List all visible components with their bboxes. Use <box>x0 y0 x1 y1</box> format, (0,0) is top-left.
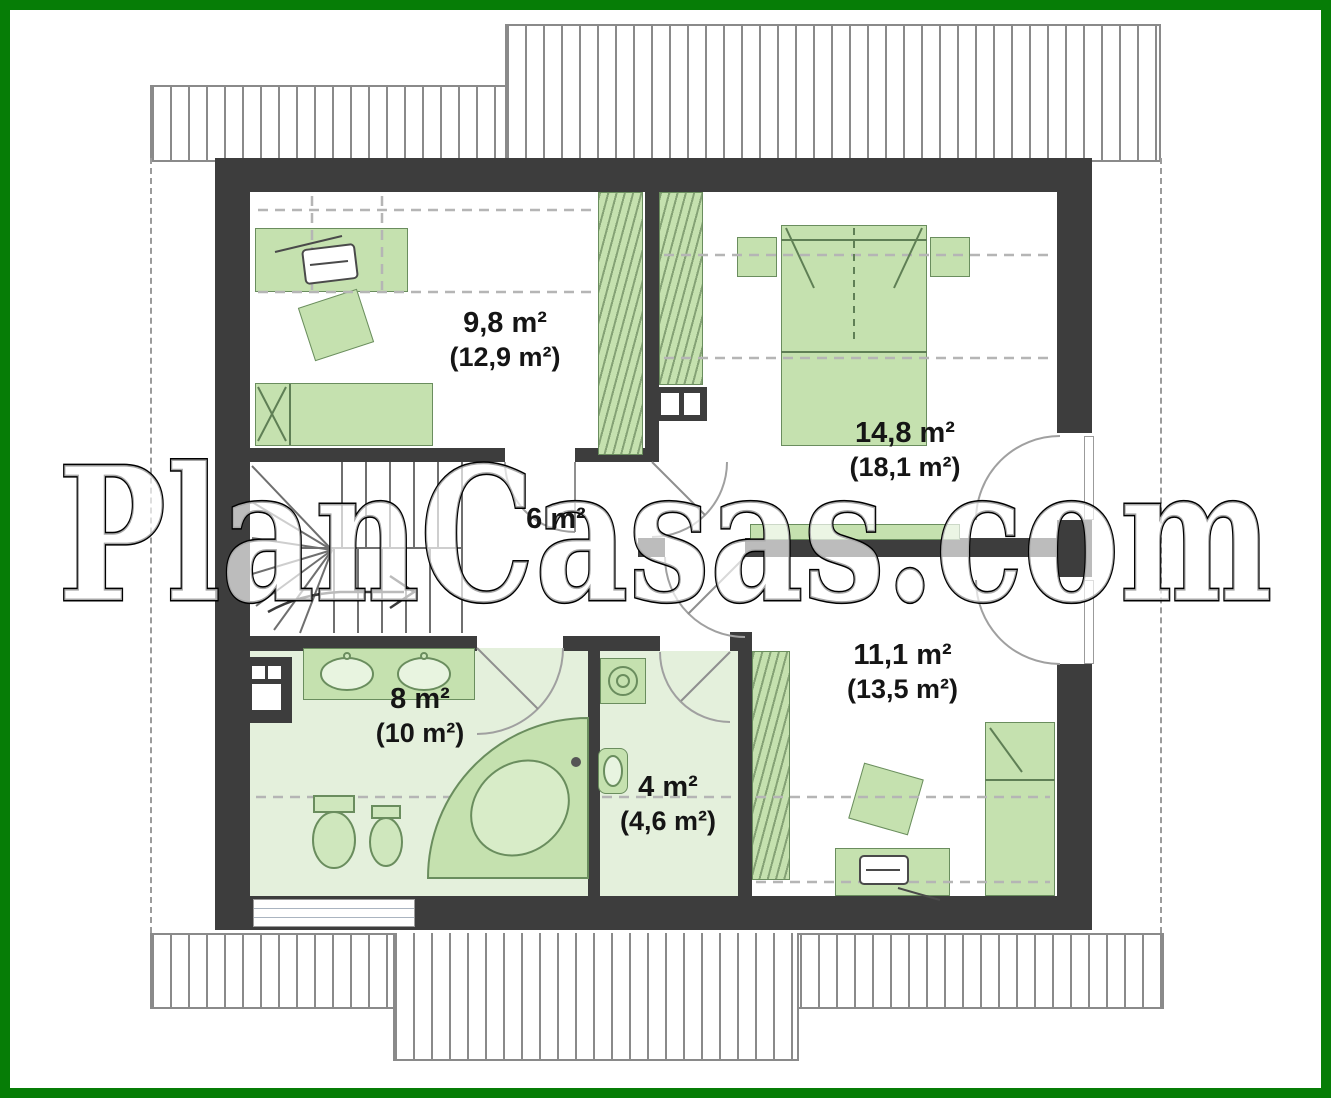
room-area-net: 9,8 m² <box>400 306 610 340</box>
room-label-utility: 4 m² (4,6 m²) <box>580 770 756 838</box>
floor-plan-image: PlanCasas.com 9,8 m² (12,9 m²) 14,8 m² (… <box>0 0 1331 1098</box>
toilet-icon <box>313 812 355 868</box>
watermark-text: PlanCasas.com <box>58 426 1273 644</box>
room-area-gross: (4,6 m²) <box>580 804 756 838</box>
room-label-hall: 6 m² <box>501 502 611 536</box>
room-area-net: 11,1 m² <box>790 638 1015 672</box>
room-area-net: 14,8 m² <box>795 416 1015 450</box>
room-label-bathroom: 8 m² (10 m²) <box>332 682 508 750</box>
bathtub-faucet-icon <box>571 757 581 767</box>
bidet-icon <box>372 806 400 818</box>
toilet-icon <box>314 796 354 812</box>
room-label-9-8: 9,8 m² (12,9 m²) <box>400 306 610 374</box>
room-area-net: 8 m² <box>332 682 508 716</box>
room-area-net: 6 m² <box>501 502 611 536</box>
room-area-gross: (18,1 m²) <box>795 450 1015 484</box>
room-area-net: 4 m² <box>580 770 756 804</box>
room-label-14-8: 14,8 m² (18,1 m²) <box>795 416 1015 484</box>
plan-linework: PlanCasas.com <box>0 0 1331 1098</box>
room-area-gross: (10 m²) <box>332 716 508 750</box>
washing-machine-drum-icon <box>609 667 637 695</box>
room-area-gross: (12,9 m²) <box>400 340 610 374</box>
bidet-icon <box>370 818 402 866</box>
room-area-gross: (13,5 m²) <box>790 672 1015 706</box>
room-label-11-1: 11,1 m² (13,5 m²) <box>790 638 1015 706</box>
